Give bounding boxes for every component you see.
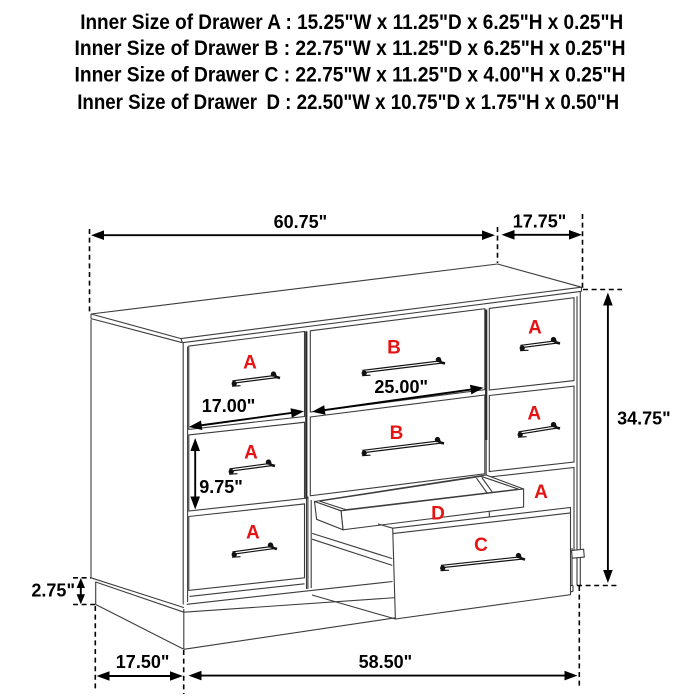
- svg-text:9.75": 9.75": [199, 477, 243, 497]
- svg-text:58.50": 58.50": [359, 652, 413, 672]
- svg-text:A: A: [246, 523, 260, 544]
- svg-text:34.75": 34.75": [617, 409, 671, 429]
- svg-text:C: C: [474, 535, 488, 556]
- svg-text:D: D: [431, 504, 445, 525]
- svg-text:Inner Size of Drawer B : 22.75: Inner Size of Drawer B : 22.75"W x 11.25…: [75, 37, 626, 60]
- svg-text:25.00": 25.00": [374, 377, 428, 397]
- svg-text:Inner Size of Drawer A : 15.25: Inner Size of Drawer A : 15.25"W x 11.25…: [80, 11, 623, 34]
- svg-text:A: A: [528, 318, 542, 339]
- svg-text:17.50": 17.50": [116, 652, 170, 672]
- svg-text:Inner Size of Drawer C : 22.75: Inner Size of Drawer C : 22.75"W x 11.25…: [75, 63, 626, 86]
- svg-text:A: A: [534, 482, 548, 503]
- svg-text:A: A: [243, 353, 257, 374]
- svg-text:60.75": 60.75": [274, 212, 328, 232]
- svg-text:17.75": 17.75": [513, 212, 567, 232]
- svg-text:17.00": 17.00": [202, 396, 256, 416]
- svg-text:B: B: [390, 423, 404, 444]
- svg-text:A: A: [244, 443, 258, 464]
- svg-text:2.75": 2.75": [31, 581, 75, 601]
- svg-text:A: A: [527, 403, 541, 424]
- svg-text:Inner Size of Drawer D : 22.50: Inner Size of Drawer D : 22.50"W x 10.75…: [77, 91, 619, 114]
- svg-text:B: B: [387, 338, 401, 359]
